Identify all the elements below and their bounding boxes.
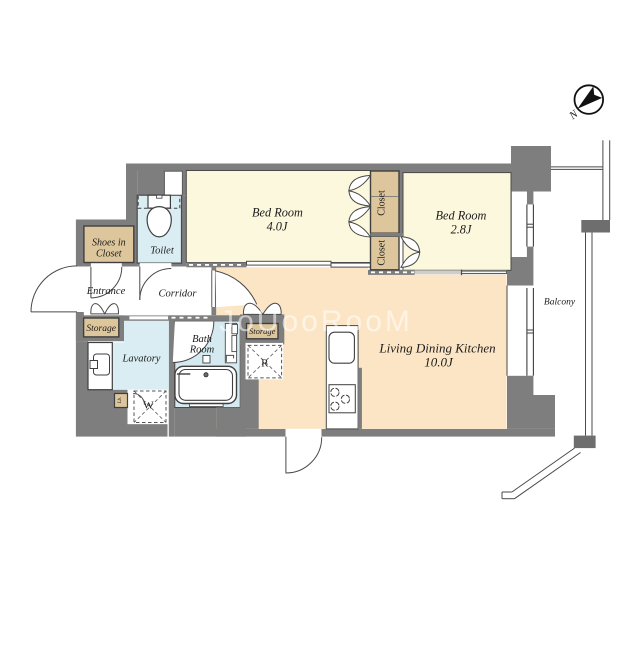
svg-text:Corridor: Corridor — [159, 289, 198, 300]
svg-text:Closet: Closet — [377, 190, 388, 216]
svg-text:Entrance: Entrance — [86, 286, 126, 297]
svg-text:Closet: Closet — [377, 240, 388, 266]
svg-text:Closet: Closet — [96, 249, 122, 260]
svg-text:2.8J: 2.8J — [451, 223, 472, 237]
svg-text:Lb.: Lb. — [118, 397, 123, 405]
svg-text:Room: Room — [189, 345, 215, 356]
svg-text:Toilet: Toilet — [150, 246, 175, 257]
svg-text:R: R — [261, 358, 269, 370]
svg-text:Bath: Bath — [192, 334, 212, 345]
svg-text:Storage: Storage — [86, 324, 116, 334]
svg-text:4.0J: 4.0J — [267, 220, 288, 234]
svg-text:JoUooRooM: JoUooRooM — [219, 305, 413, 338]
svg-text:Living Dining Kitchen: Living Dining Kitchen — [378, 341, 495, 356]
svg-text:Bed Room: Bed Room — [436, 209, 487, 223]
svg-text:W: W — [143, 400, 154, 412]
svg-text:Balcony: Balcony — [544, 298, 576, 308]
svg-text:Bed Room: Bed Room — [252, 206, 303, 220]
svg-text:Shoes in: Shoes in — [92, 238, 126, 249]
svg-text:10.0J: 10.0J — [424, 355, 454, 370]
svg-text:Lavatory: Lavatory — [122, 354, 161, 365]
